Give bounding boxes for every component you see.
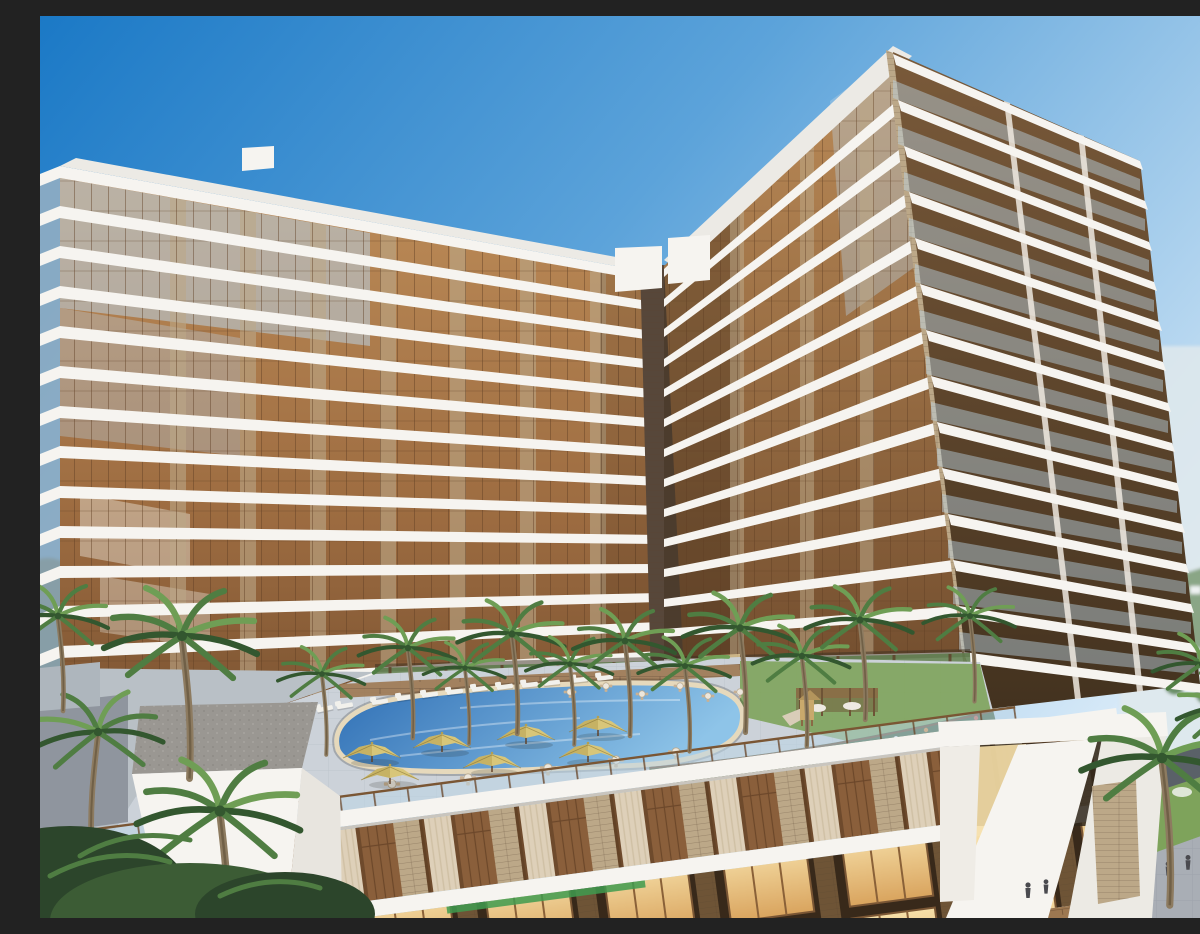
left-gray-wall-upper: [40, 662, 100, 711]
roof-bulkhead: [615, 246, 662, 292]
roof-bulkhead: [242, 146, 274, 171]
architectural-rendering: Aerial rendering of a bent residential c…: [40, 16, 1200, 918]
left-gray-wall: [40, 694, 128, 834]
canopy-brick-pier-texture: [1092, 780, 1140, 904]
person: [1025, 882, 1030, 898]
roof-bulkhead: [668, 235, 710, 284]
render-canvas: Resort condominium complex — architectur…: [40, 16, 1200, 918]
person: [1186, 855, 1191, 870]
canopy-left-fin: [940, 745, 980, 902]
person: [1044, 879, 1049, 893]
